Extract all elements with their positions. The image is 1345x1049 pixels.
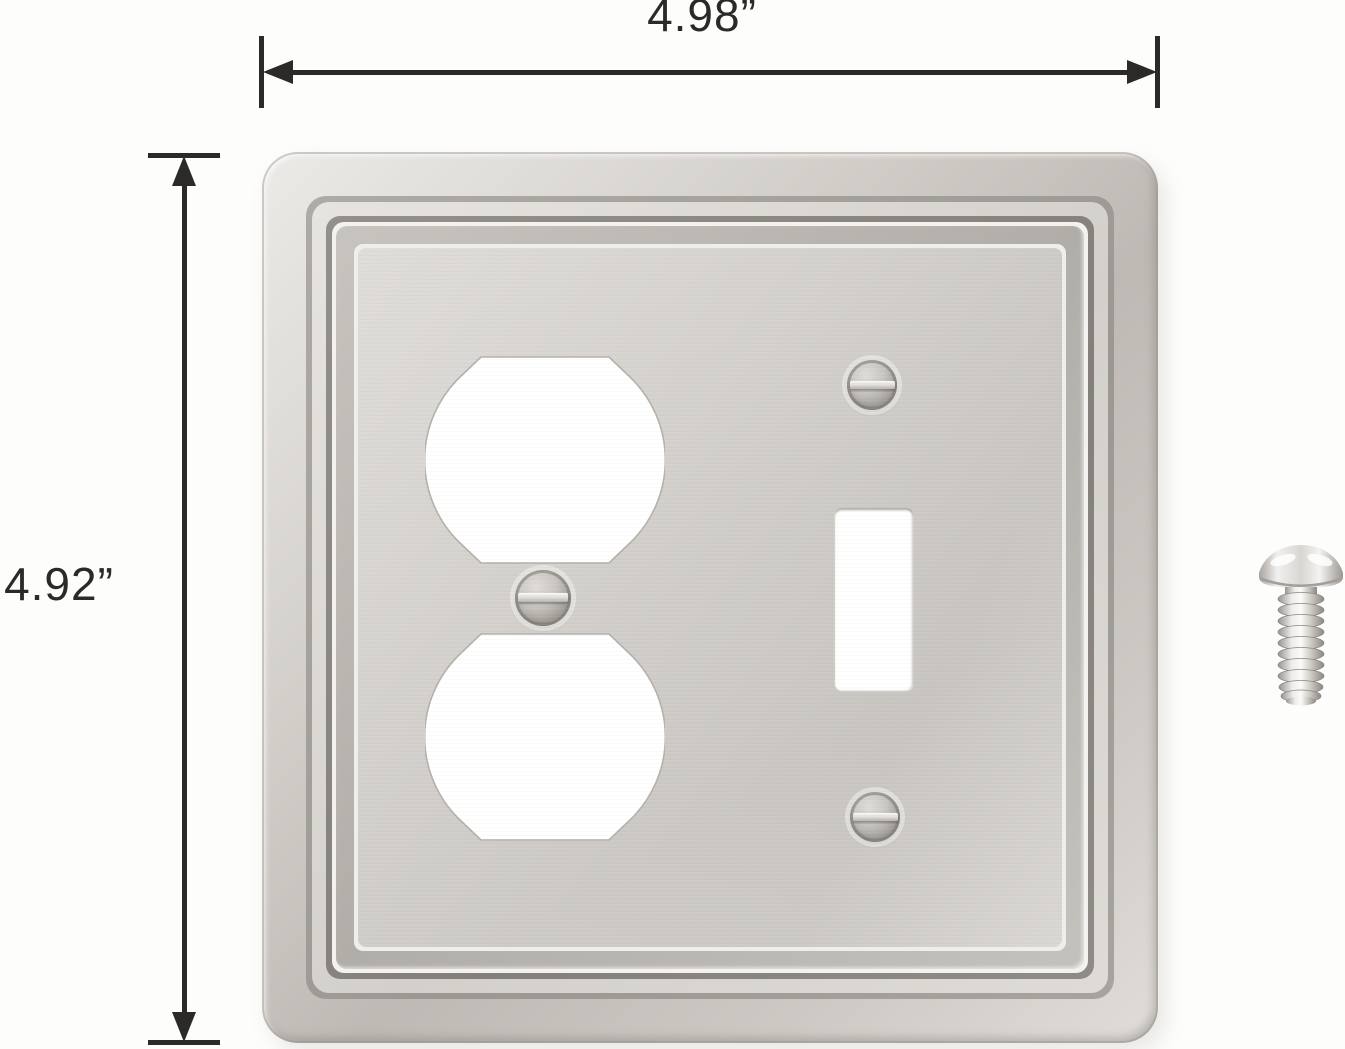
height-dimension-line xyxy=(182,184,187,1014)
arrow-right-icon xyxy=(1127,60,1157,84)
product-dimension-diagram: 4.98” 4.92” xyxy=(0,0,1345,1049)
arrow-left-icon xyxy=(263,60,293,84)
mounting-screw-icon xyxy=(1256,543,1345,708)
duplex-outlet-opening-top xyxy=(425,356,665,564)
screw-slot xyxy=(518,593,568,603)
arrow-down-icon xyxy=(172,1012,196,1042)
arrow-up-icon xyxy=(172,156,196,186)
duplex-center-screw-icon xyxy=(515,570,571,626)
width-dimension-label: 4.98” xyxy=(552,0,852,38)
wall-plate xyxy=(262,152,1158,1043)
duplex-outlet-opening-bottom xyxy=(425,633,665,841)
width-dimension-line xyxy=(290,70,1128,75)
plate-face xyxy=(358,248,1062,947)
toggle-switch-opening xyxy=(835,508,913,690)
screw-slot xyxy=(850,381,895,390)
toggle-bottom-screw-icon xyxy=(850,792,900,842)
screw-slot xyxy=(853,813,898,822)
toggle-top-screw-icon xyxy=(847,360,897,410)
height-dimension-label: 4.92” xyxy=(0,561,122,607)
